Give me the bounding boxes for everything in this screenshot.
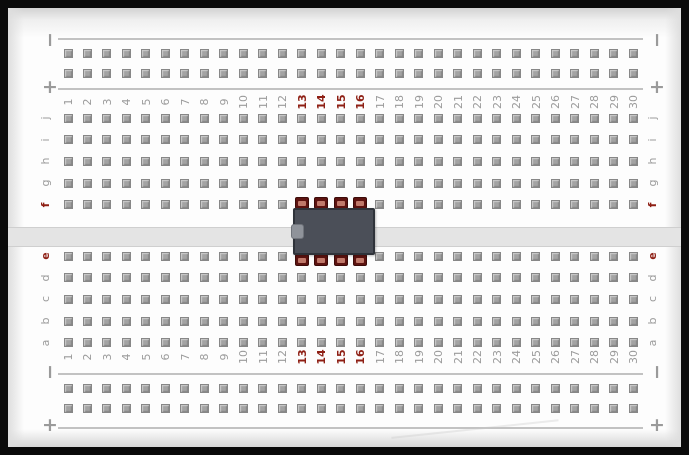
grid-hole[interactable]: [161, 273, 170, 282]
grid-hole[interactable]: [531, 317, 540, 326]
grid-hole[interactable]: [180, 273, 189, 282]
grid-hole[interactable]: [629, 200, 638, 209]
grid-hole[interactable]: [473, 252, 482, 261]
grid-hole[interactable]: [336, 317, 345, 326]
rail-hole[interactable]: [551, 49, 560, 58]
grid-hole[interactable]: [551, 157, 560, 166]
grid-hole[interactable]: [161, 157, 170, 166]
rail-hole[interactable]: [492, 69, 501, 78]
grid-hole[interactable]: [629, 317, 638, 326]
grid-hole[interactable]: [434, 317, 443, 326]
rail-hole[interactable]: [473, 384, 482, 393]
grid-hole[interactable]: [551, 179, 560, 188]
grid-hole[interactable]: [375, 200, 384, 209]
grid-hole[interactable]: [161, 295, 170, 304]
rail-hole[interactable]: [122, 49, 131, 58]
grid-hole[interactable]: [180, 179, 189, 188]
grid-hole[interactable]: [141, 135, 150, 144]
rail-hole[interactable]: [278, 69, 287, 78]
grid-hole[interactable]: [219, 317, 228, 326]
grid-hole[interactable]: [453, 273, 462, 282]
grid-hole[interactable]: [512, 338, 521, 347]
rail-hole[interactable]: [395, 404, 404, 413]
grid-hole[interactable]: [570, 252, 579, 261]
grid-hole[interactable]: [356, 317, 365, 326]
ic-chip-body[interactable]: [293, 208, 375, 255]
grid-hole[interactable]: [122, 157, 131, 166]
grid-hole[interactable]: [297, 157, 306, 166]
rail-hole[interactable]: [102, 69, 111, 78]
grid-hole[interactable]: [473, 157, 482, 166]
rail-hole[interactable]: [219, 69, 228, 78]
grid-hole[interactable]: [512, 317, 521, 326]
grid-hole[interactable]: [102, 252, 111, 261]
grid-hole[interactable]: [239, 200, 248, 209]
rail-hole[interactable]: [336, 384, 345, 393]
grid-hole[interactable]: [629, 157, 638, 166]
grid-hole[interactable]: [122, 295, 131, 304]
rail-hole[interactable]: [161, 69, 170, 78]
rail-hole[interactable]: [317, 49, 326, 58]
grid-hole[interactable]: [590, 135, 599, 144]
rail-hole[interactable]: [492, 49, 501, 58]
rail-hole[interactable]: [375, 49, 384, 58]
grid-hole[interactable]: [83, 135, 92, 144]
grid-hole[interactable]: [180, 200, 189, 209]
grid-hole[interactable]: [551, 252, 560, 261]
grid-hole[interactable]: [317, 179, 326, 188]
ic-pin-lower[interactable]: [314, 254, 328, 266]
grid-hole[interactable]: [83, 317, 92, 326]
grid-hole[interactable]: [629, 273, 638, 282]
rail-hole[interactable]: [336, 69, 345, 78]
rail-hole[interactable]: [239, 49, 248, 58]
grid-hole[interactable]: [258, 273, 267, 282]
grid-hole[interactable]: [551, 317, 560, 326]
grid-hole[interactable]: [395, 200, 404, 209]
grid-hole[interactable]: [239, 179, 248, 188]
grid-hole[interactable]: [629, 179, 638, 188]
grid-hole[interactable]: [180, 157, 189, 166]
grid-hole[interactable]: [590, 200, 599, 209]
grid-hole[interactable]: [551, 295, 560, 304]
grid-hole[interactable]: [200, 252, 209, 261]
grid-hole[interactable]: [141, 200, 150, 209]
grid-hole[interactable]: [453, 157, 462, 166]
grid-hole[interactable]: [570, 295, 579, 304]
grid-hole[interactable]: [395, 179, 404, 188]
grid-hole[interactable]: [375, 273, 384, 282]
rail-hole[interactable]: [297, 49, 306, 58]
grid-hole[interactable]: [239, 135, 248, 144]
grid-hole[interactable]: [200, 114, 209, 123]
grid-hole[interactable]: [141, 157, 150, 166]
grid-hole[interactable]: [297, 135, 306, 144]
grid-hole[interactable]: [375, 179, 384, 188]
grid-hole[interactable]: [219, 135, 228, 144]
grid-hole[interactable]: [122, 252, 131, 261]
grid-hole[interactable]: [570, 317, 579, 326]
rail-hole[interactable]: [356, 384, 365, 393]
grid-hole[interactable]: [83, 114, 92, 123]
grid-hole[interactable]: [453, 295, 462, 304]
grid-hole[interactable]: [278, 317, 287, 326]
grid-hole[interactable]: [200, 317, 209, 326]
grid-hole[interactable]: [122, 317, 131, 326]
grid-hole[interactable]: [219, 114, 228, 123]
grid-hole[interactable]: [64, 295, 73, 304]
grid-hole[interactable]: [531, 114, 540, 123]
rail-hole[interactable]: [200, 69, 209, 78]
grid-hole[interactable]: [336, 135, 345, 144]
grid-hole[interactable]: [551, 114, 560, 123]
grid-hole[interactable]: [512, 135, 521, 144]
rail-hole[interactable]: [141, 384, 150, 393]
grid-hole[interactable]: [317, 273, 326, 282]
grid-hole[interactable]: [453, 114, 462, 123]
rail-hole[interactable]: [122, 384, 131, 393]
grid-hole[interactable]: [531, 157, 540, 166]
grid-hole[interactable]: [141, 273, 150, 282]
grid-hole[interactable]: [609, 179, 618, 188]
rail-hole[interactable]: [590, 384, 599, 393]
grid-hole[interactable]: [492, 200, 501, 209]
grid-hole[interactable]: [219, 200, 228, 209]
grid-hole[interactable]: [512, 157, 521, 166]
grid-hole[interactable]: [219, 179, 228, 188]
rail-hole[interactable]: [395, 384, 404, 393]
rail-hole[interactable]: [375, 384, 384, 393]
grid-hole[interactable]: [64, 200, 73, 209]
grid-hole[interactable]: [570, 200, 579, 209]
grid-hole[interactable]: [278, 157, 287, 166]
grid-hole[interactable]: [122, 200, 131, 209]
grid-hole[interactable]: [629, 114, 638, 123]
grid-hole[interactable]: [453, 200, 462, 209]
grid-hole[interactable]: [609, 252, 618, 261]
grid-hole[interactable]: [141, 114, 150, 123]
grid-hole[interactable]: [336, 295, 345, 304]
grid-hole[interactable]: [83, 157, 92, 166]
rail-hole[interactable]: [551, 69, 560, 78]
grid-hole[interactable]: [258, 179, 267, 188]
rail-hole[interactable]: [83, 384, 92, 393]
grid-hole[interactable]: [609, 338, 618, 347]
rail-hole[interactable]: [590, 49, 599, 58]
grid-hole[interactable]: [83, 295, 92, 304]
rail-hole[interactable]: [102, 49, 111, 58]
grid-hole[interactable]: [64, 338, 73, 347]
grid-hole[interactable]: [161, 135, 170, 144]
grid-hole[interactable]: [356, 273, 365, 282]
grid-hole[interactable]: [122, 135, 131, 144]
grid-hole[interactable]: [375, 317, 384, 326]
rail-hole[interactable]: [609, 69, 618, 78]
grid-hole[interactable]: [609, 135, 618, 144]
grid-hole[interactable]: [512, 114, 521, 123]
rail-hole[interactable]: [258, 69, 267, 78]
grid-hole[interactable]: [492, 273, 501, 282]
grid-hole[interactable]: [629, 252, 638, 261]
grid-hole[interactable]: [531, 252, 540, 261]
grid-hole[interactable]: [278, 114, 287, 123]
rail-hole[interactable]: [434, 404, 443, 413]
grid-hole[interactable]: [492, 252, 501, 261]
grid-hole[interactable]: [434, 157, 443, 166]
grid-hole[interactable]: [141, 317, 150, 326]
grid-hole[interactable]: [434, 179, 443, 188]
rail-hole[interactable]: [629, 49, 638, 58]
rail-hole[interactable]: [317, 69, 326, 78]
grid-hole[interactable]: [375, 114, 384, 123]
grid-hole[interactable]: [239, 273, 248, 282]
grid-hole[interactable]: [161, 252, 170, 261]
grid-hole[interactable]: [609, 317, 618, 326]
grid-hole[interactable]: [102, 200, 111, 209]
grid-hole[interactable]: [492, 338, 501, 347]
rail-hole[interactable]: [414, 69, 423, 78]
grid-hole[interactable]: [258, 114, 267, 123]
grid-hole[interactable]: [278, 200, 287, 209]
grid-hole[interactable]: [122, 179, 131, 188]
grid-hole[interactable]: [278, 338, 287, 347]
grid-hole[interactable]: [278, 252, 287, 261]
rail-hole[interactable]: [180, 49, 189, 58]
grid-hole[interactable]: [83, 179, 92, 188]
rail-hole[interactable]: [473, 49, 482, 58]
grid-hole[interactable]: [102, 273, 111, 282]
grid-hole[interactable]: [64, 114, 73, 123]
grid-hole[interactable]: [414, 295, 423, 304]
grid-hole[interactable]: [180, 114, 189, 123]
rail-hole[interactable]: [317, 384, 326, 393]
rail-hole[interactable]: [239, 404, 248, 413]
rail-hole[interactable]: [356, 69, 365, 78]
grid-hole[interactable]: [64, 135, 73, 144]
grid-hole[interactable]: [356, 179, 365, 188]
grid-hole[interactable]: [297, 114, 306, 123]
grid-hole[interactable]: [414, 157, 423, 166]
grid-hole[interactable]: [317, 114, 326, 123]
grid-hole[interactable]: [492, 317, 501, 326]
grid-hole[interactable]: [356, 157, 365, 166]
grid-hole[interactable]: [453, 338, 462, 347]
grid-hole[interactable]: [336, 179, 345, 188]
grid-hole[interactable]: [590, 114, 599, 123]
grid-hole[interactable]: [297, 295, 306, 304]
rail-hole[interactable]: [161, 384, 170, 393]
grid-hole[interactable]: [609, 114, 618, 123]
grid-hole[interactable]: [122, 338, 131, 347]
rail-hole[interactable]: [278, 384, 287, 393]
grid-hole[interactable]: [453, 252, 462, 261]
grid-hole[interactable]: [219, 338, 228, 347]
rail-hole[interactable]: [492, 404, 501, 413]
rail-hole[interactable]: [180, 69, 189, 78]
grid-hole[interactable]: [434, 114, 443, 123]
rail-hole[interactable]: [551, 384, 560, 393]
grid-hole[interactable]: [141, 338, 150, 347]
grid-hole[interactable]: [258, 252, 267, 261]
grid-hole[interactable]: [102, 157, 111, 166]
rail-hole[interactable]: [141, 69, 150, 78]
rail-hole[interactable]: [629, 384, 638, 393]
grid-hole[interactable]: [102, 317, 111, 326]
grid-hole[interactable]: [551, 135, 560, 144]
rail-hole[interactable]: [83, 69, 92, 78]
rail-hole[interactable]: [83, 49, 92, 58]
rail-hole[interactable]: [102, 384, 111, 393]
grid-hole[interactable]: [609, 273, 618, 282]
grid-hole[interactable]: [609, 200, 618, 209]
grid-hole[interactable]: [336, 157, 345, 166]
rail-hole[interactable]: [492, 384, 501, 393]
grid-hole[interactable]: [434, 135, 443, 144]
grid-hole[interactable]: [122, 273, 131, 282]
grid-hole[interactable]: [531, 179, 540, 188]
rail-hole[interactable]: [278, 404, 287, 413]
grid-hole[interactable]: [375, 135, 384, 144]
grid-hole[interactable]: [200, 273, 209, 282]
grid-hole[interactable]: [278, 273, 287, 282]
grid-hole[interactable]: [570, 114, 579, 123]
ic-pin-lower[interactable]: [334, 254, 348, 266]
grid-hole[interactable]: [414, 317, 423, 326]
grid-hole[interactable]: [414, 179, 423, 188]
grid-hole[interactable]: [180, 338, 189, 347]
grid-hole[interactable]: [414, 338, 423, 347]
grid-hole[interactable]: [590, 252, 599, 261]
grid-hole[interactable]: [395, 338, 404, 347]
grid-hole[interactable]: [551, 338, 560, 347]
grid-hole[interactable]: [64, 179, 73, 188]
ic-pin-lower[interactable]: [295, 254, 309, 266]
grid-hole[interactable]: [375, 252, 384, 261]
rail-hole[interactable]: [102, 404, 111, 413]
grid-hole[interactable]: [473, 295, 482, 304]
grid-hole[interactable]: [317, 317, 326, 326]
grid-hole[interactable]: [297, 179, 306, 188]
rail-hole[interactable]: [219, 404, 228, 413]
rail-hole[interactable]: [161, 49, 170, 58]
grid-hole[interactable]: [473, 114, 482, 123]
grid-hole[interactable]: [512, 273, 521, 282]
rail-hole[interactable]: [258, 404, 267, 413]
grid-hole[interactable]: [629, 295, 638, 304]
grid-hole[interactable]: [297, 338, 306, 347]
rail-hole[interactable]: [122, 404, 131, 413]
grid-hole[interactable]: [492, 179, 501, 188]
grid-hole[interactable]: [83, 338, 92, 347]
grid-hole[interactable]: [531, 273, 540, 282]
grid-hole[interactable]: [102, 114, 111, 123]
grid-hole[interactable]: [278, 135, 287, 144]
rail-hole[interactable]: [200, 384, 209, 393]
rail-hole[interactable]: [180, 384, 189, 393]
grid-hole[interactable]: [570, 273, 579, 282]
ic-pin-lower[interactable]: [353, 254, 367, 266]
rail-hole[interactable]: [141, 49, 150, 58]
grid-hole[interactable]: [219, 273, 228, 282]
grid-hole[interactable]: [83, 200, 92, 209]
rail-hole[interactable]: [200, 49, 209, 58]
grid-hole[interactable]: [278, 295, 287, 304]
rail-hole[interactable]: [453, 404, 462, 413]
rail-hole[interactable]: [239, 69, 248, 78]
grid-hole[interactable]: [161, 338, 170, 347]
grid-hole[interactable]: [414, 135, 423, 144]
grid-hole[interactable]: [453, 179, 462, 188]
rail-hole[interactable]: [258, 49, 267, 58]
grid-hole[interactable]: [161, 114, 170, 123]
rail-hole[interactable]: [531, 69, 540, 78]
grid-hole[interactable]: [551, 200, 560, 209]
rail-hole[interactable]: [609, 384, 618, 393]
grid-hole[interactable]: [317, 135, 326, 144]
grid-hole[interactable]: [629, 135, 638, 144]
grid-hole[interactable]: [297, 273, 306, 282]
grid-hole[interactable]: [473, 179, 482, 188]
rail-hole[interactable]: [64, 69, 73, 78]
rail-hole[interactable]: [570, 404, 579, 413]
grid-hole[interactable]: [453, 135, 462, 144]
grid-hole[interactable]: [356, 295, 365, 304]
rail-hole[interactable]: [570, 384, 579, 393]
grid-hole[interactable]: [200, 135, 209, 144]
grid-hole[interactable]: [531, 200, 540, 209]
grid-hole[interactable]: [492, 135, 501, 144]
grid-hole[interactable]: [531, 135, 540, 144]
grid-hole[interactable]: [278, 179, 287, 188]
grid-hole[interactable]: [375, 157, 384, 166]
grid-hole[interactable]: [180, 135, 189, 144]
grid-hole[interactable]: [414, 273, 423, 282]
rail-hole[interactable]: [356, 49, 365, 58]
rail-hole[interactable]: [395, 69, 404, 78]
rail-hole[interactable]: [64, 404, 73, 413]
grid-hole[interactable]: [83, 252, 92, 261]
rail-hole[interactable]: [531, 384, 540, 393]
grid-hole[interactable]: [258, 338, 267, 347]
grid-hole[interactable]: [258, 295, 267, 304]
rail-hole[interactable]: [64, 384, 73, 393]
grid-hole[interactable]: [473, 273, 482, 282]
grid-hole[interactable]: [64, 157, 73, 166]
grid-hole[interactable]: [219, 157, 228, 166]
rail-hole[interactable]: [375, 69, 384, 78]
grid-hole[interactable]: [395, 273, 404, 282]
rail-hole[interactable]: [297, 384, 306, 393]
grid-hole[interactable]: [258, 157, 267, 166]
grid-hole[interactable]: [239, 157, 248, 166]
rail-hole[interactable]: [531, 49, 540, 58]
grid-hole[interactable]: [200, 295, 209, 304]
rail-hole[interactable]: [629, 69, 638, 78]
grid-hole[interactable]: [473, 317, 482, 326]
rail-hole[interactable]: [356, 404, 365, 413]
grid-hole[interactable]: [161, 317, 170, 326]
grid-hole[interactable]: [64, 252, 73, 261]
grid-hole[interactable]: [609, 157, 618, 166]
rail-hole[interactable]: [531, 404, 540, 413]
rail-hole[interactable]: [590, 404, 599, 413]
grid-hole[interactable]: [239, 252, 248, 261]
rail-hole[interactable]: [141, 404, 150, 413]
grid-hole[interactable]: [83, 273, 92, 282]
grid-hole[interactable]: [590, 273, 599, 282]
grid-hole[interactable]: [258, 135, 267, 144]
rail-hole[interactable]: [609, 49, 618, 58]
